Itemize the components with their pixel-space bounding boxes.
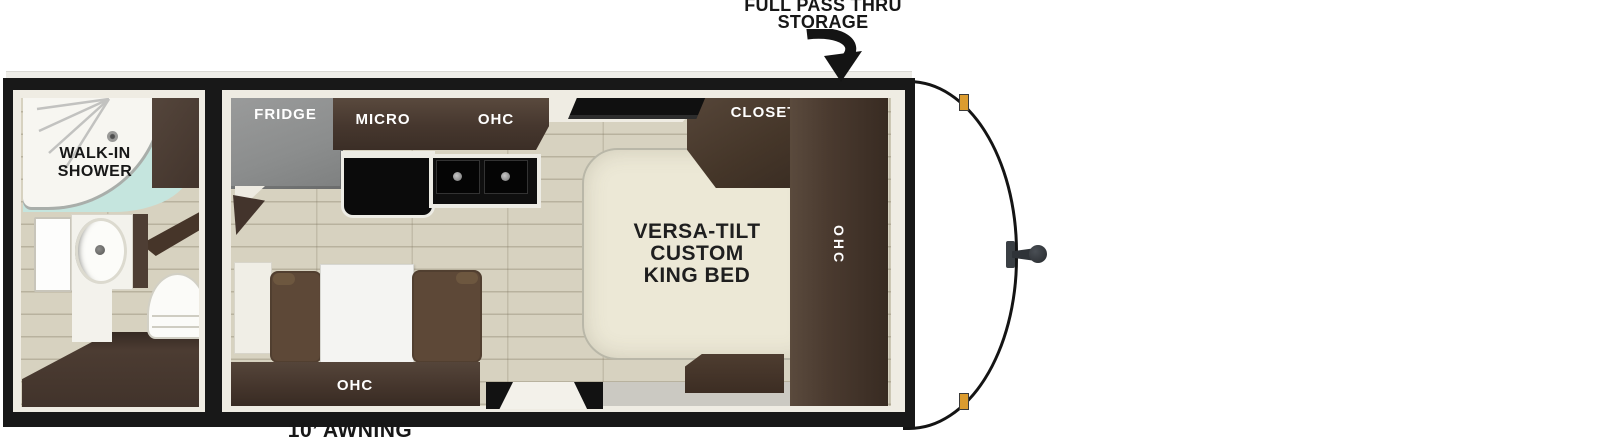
- dinette-side-panel: [234, 262, 272, 354]
- roof-vent: [568, 96, 706, 119]
- walk-in-shower-label-line1: WALK-IN: [59, 145, 130, 162]
- dinette-bench-right: [412, 270, 482, 363]
- dinette-overhead-cabinet: OHC: [230, 362, 480, 408]
- bed-label-line2: CUSTOM: [650, 243, 744, 265]
- microwave-oven: [341, 151, 435, 218]
- bedroom-overhead-cabinet: OHC: [790, 97, 888, 407]
- dinette-table: [320, 264, 414, 366]
- sink-drain-icon: [95, 245, 105, 255]
- callout-arrow-icon: [787, 29, 877, 82]
- bathroom-sink-pedestal: [72, 286, 112, 342]
- bathroom-upper-cabinet: [152, 93, 205, 188]
- sink-drain-icon: [501, 172, 510, 181]
- bathroom-window: [34, 217, 72, 292]
- fridge-label: FRIDGE: [228, 106, 343, 123]
- toilet-tank-lines: [152, 315, 202, 328]
- bed-label-line1: VERSA-TILT: [633, 221, 760, 243]
- bed-foot-cabinet: [685, 354, 784, 393]
- dinette-bench-left: [270, 271, 322, 363]
- door-jamb-right: [574, 382, 603, 409]
- refrigerator: FRIDGE: [228, 97, 343, 189]
- entry-door-step: [486, 382, 603, 409]
- microwave-label: MICRO: [343, 111, 423, 128]
- shower-drain-icon: [107, 131, 118, 142]
- bench-armrest: [456, 272, 478, 284]
- walk-in-shower-label: WALK-IN SHOWER: [35, 145, 155, 181]
- main-cabin: VERSA-TILT CUSTOM KING BED CLOSET OHC FR…: [222, 90, 905, 412]
- dinette-ohc-label: OHC: [230, 377, 480, 394]
- trailer-front-cap: [903, 80, 1018, 430]
- sink-basin-left: [436, 160, 480, 194]
- bedroom-ohc-label: OHC: [831, 225, 847, 265]
- bed-label-line3: KING BED: [644, 265, 751, 287]
- sink-basin-right: [484, 160, 528, 194]
- bench-armrest: [273, 273, 295, 285]
- pass-thru-storage-callout: FULL PASS THRU STORAGE: [718, 0, 928, 31]
- kitchen-overhead-cabinet: MICRO OHC: [333, 97, 549, 150]
- awning-label: 10’ AWNING: [277, 419, 423, 443]
- door-jamb-left: [486, 382, 513, 409]
- floorplan-stage: WALK-IN SHOWER VERSA-TILT CUSTOM KING BE…: [0, 0, 1600, 443]
- kitchen-ohc-label: OHC: [461, 111, 531, 128]
- walk-in-shower-label-line2: SHOWER: [58, 163, 132, 180]
- bathroom: WALK-IN SHOWER: [13, 90, 205, 412]
- clearance-light-bottom: [959, 393, 969, 410]
- sink-drain-icon: [453, 172, 462, 181]
- clearance-light-top: [959, 94, 969, 111]
- hitch-coupler-ball: [1029, 245, 1047, 263]
- kitchen-sink: [429, 154, 541, 208]
